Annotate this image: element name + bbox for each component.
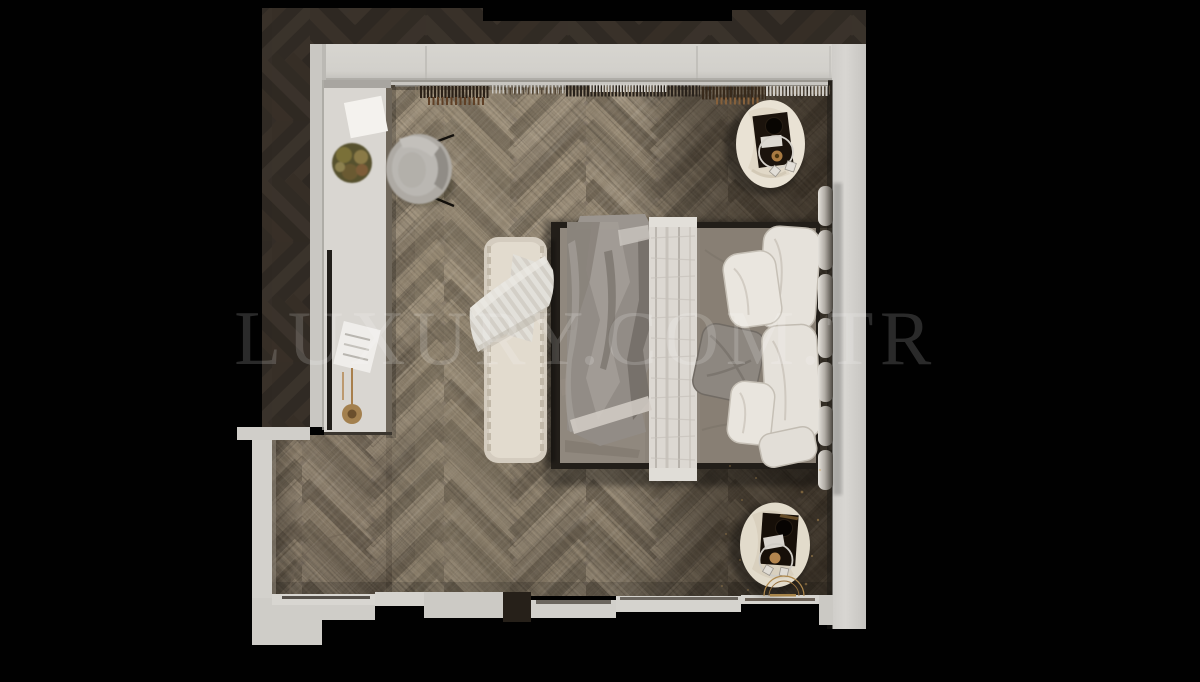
svg-text:LUXURY.COM.TR: LUXURY.COM.TR: [234, 295, 937, 381]
